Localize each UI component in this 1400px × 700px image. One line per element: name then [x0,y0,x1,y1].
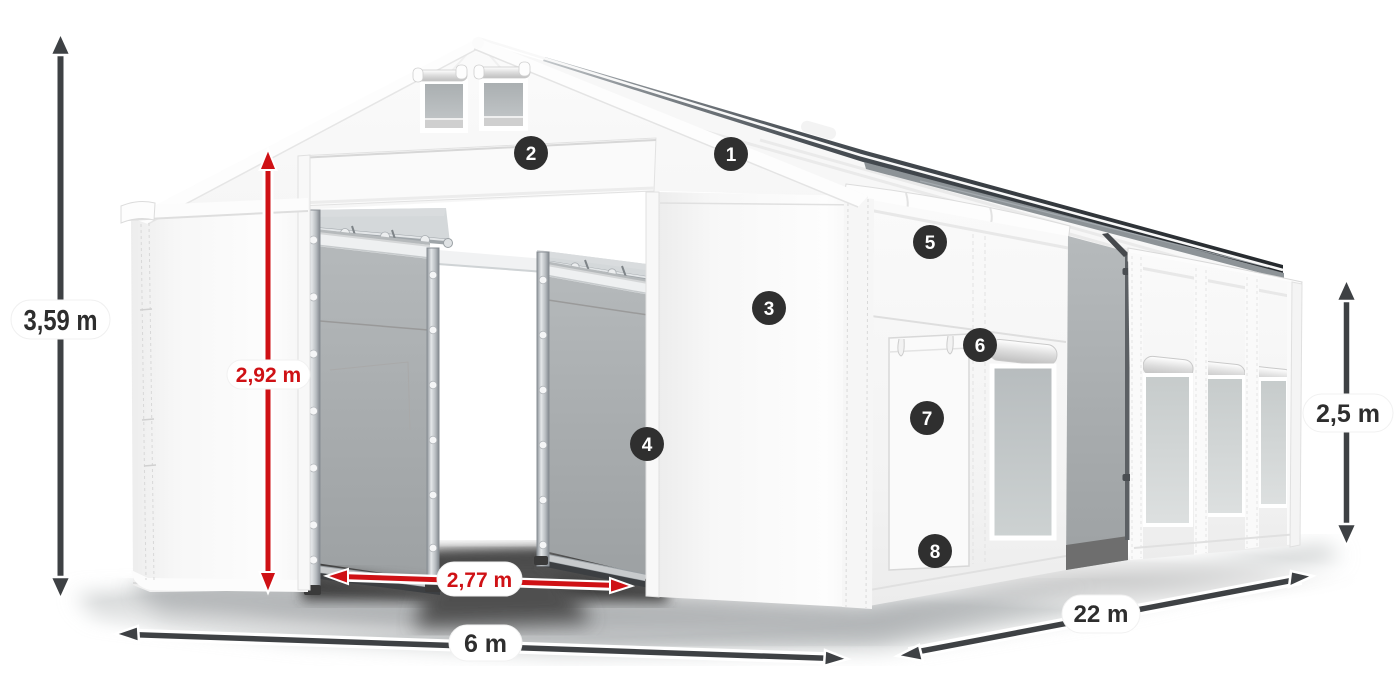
svg-text:4: 4 [642,435,653,456]
svg-text:2: 2 [526,144,537,165]
svg-text:3: 3 [764,299,775,320]
svg-text:6 m: 6 m [464,630,507,658]
svg-text:7: 7 [922,409,933,430]
svg-text:2,5 m: 2,5 m [1316,400,1380,428]
svg-text:2,92 m: 2,92 m [236,364,301,387]
svg-text:3,59 m: 3,59 m [24,305,98,337]
svg-text:22 m: 22 m [1074,601,1129,628]
svg-text:5: 5 [925,233,936,254]
svg-text:8: 8 [930,542,941,563]
svg-text:2,77 m: 2,77 m [447,569,512,592]
svg-text:6: 6 [975,336,986,357]
svg-text:1: 1 [726,145,737,166]
